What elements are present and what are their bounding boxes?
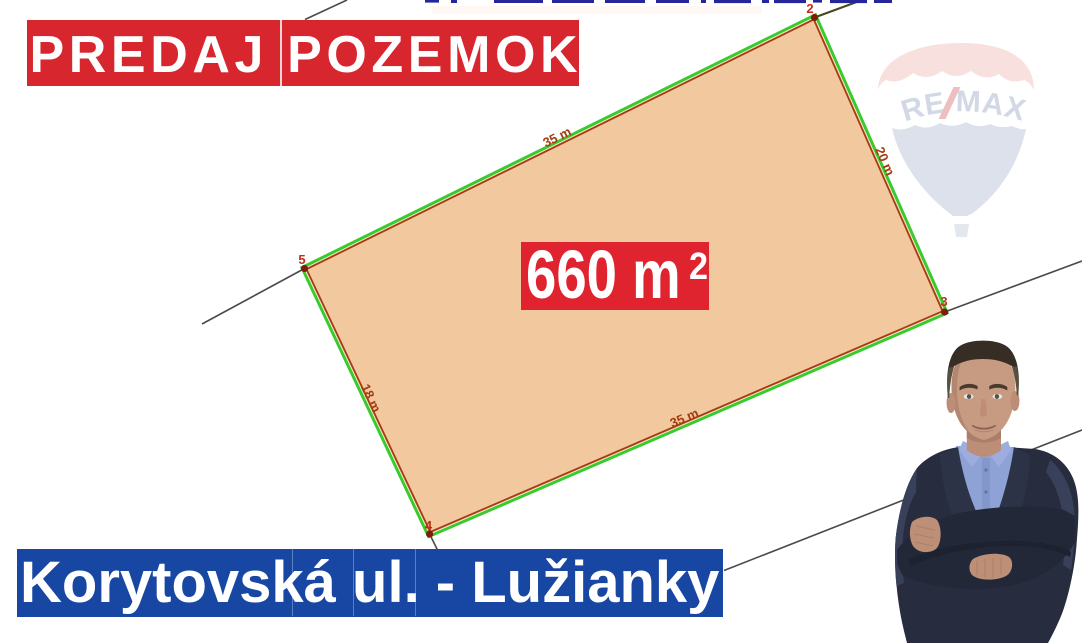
svg-text:4: 4: [425, 518, 433, 533]
svg-text:3: 3: [940, 294, 947, 309]
svg-text:RE MAX: RE MAX: [897, 85, 1029, 128]
svg-text:5: 5: [298, 252, 305, 267]
svg-text:2: 2: [806, 1, 813, 16]
